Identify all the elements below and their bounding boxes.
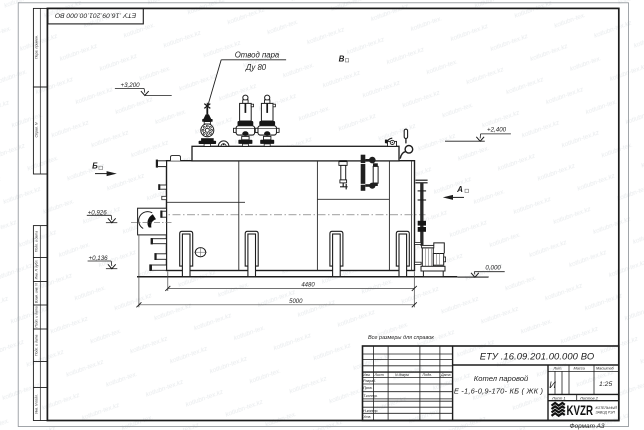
- svg-text:Инв. N подл.: Инв. N подл.: [35, 394, 39, 414]
- svg-text:ЕТУ .16.09.201.00.000 ВО: ЕТУ .16.09.201.00.000 ВО: [480, 350, 595, 361]
- svg-text:Т.контр.: Т.контр.: [363, 394, 378, 398]
- svg-text:Листов 2: Листов 2: [579, 396, 599, 401]
- svg-text:KVZR: KVZR: [567, 402, 594, 418]
- svg-text:1:25: 1:25: [599, 381, 612, 388]
- svg-text:Масштаб: Масштаб: [596, 367, 615, 371]
- svg-text:Котел паровой: Котел паровой: [474, 374, 529, 383]
- svg-text:ЕТУ .16.09.201.00.000 ВО: ЕТУ .16.09.201.00.000 ВО: [54, 12, 136, 19]
- svg-text:И: И: [549, 380, 556, 390]
- svg-text:Подп. и дата: Подп. и дата: [35, 231, 39, 252]
- svg-text:4480: 4480: [301, 283, 315, 289]
- svg-text:Взам. инв. N: Взам. инв. N: [35, 283, 39, 303]
- svg-text:0,000: 0,000: [485, 264, 501, 271]
- svg-text:Подп. и дата: Подп. и дата: [35, 334, 39, 355]
- svg-text:Н.контр.: Н.контр.: [363, 409, 378, 413]
- svg-text:А: А: [456, 185, 463, 194]
- svg-text:Все размеры для справок: Все размеры для справок: [368, 335, 434, 341]
- svg-text:Масса: Масса: [574, 367, 585, 371]
- svg-text:N докум.: N докум.: [395, 373, 410, 377]
- svg-text:Ду 80: Ду 80: [245, 63, 267, 72]
- svg-text:Перв. примен.: Перв. примен.: [35, 35, 39, 59]
- svg-text:Пров.: Пров.: [363, 386, 372, 390]
- svg-text:Лист: Лист: [374, 373, 384, 377]
- svg-text:Подп.: Подп.: [423, 373, 433, 377]
- svg-text:Изм.: Изм.: [363, 373, 371, 377]
- svg-text:Дата: Дата: [440, 373, 450, 377]
- svg-text:Справ. N: Справ. N: [35, 122, 39, 137]
- svg-text:+2,400: +2,400: [487, 127, 507, 134]
- svg-text:+3,200: +3,200: [121, 82, 141, 89]
- svg-text:Разраб.: Разраб.: [363, 379, 376, 383]
- svg-text:Инв. N дубл.: Инв. N дубл.: [35, 260, 39, 280]
- svg-text:5000: 5000: [289, 299, 303, 305]
- svg-text:Утв.: Утв.: [363, 415, 371, 419]
- svg-text:Подп. и дата: Подп. и дата: [35, 306, 39, 327]
- svg-text:Отвод пара: Отвод пара: [235, 51, 280, 60]
- svg-text:В: В: [339, 55, 345, 64]
- svg-text:Формат А3: Формат А3: [570, 423, 605, 430]
- svg-text:КОТЕЛЬНЫЙ: КОТЕЛЬНЫЙ: [596, 406, 618, 410]
- svg-text:Б: Б: [92, 162, 98, 171]
- svg-text:Лит.: Лит.: [553, 367, 563, 371]
- svg-text:Е -1,6-0,9-170- КБ ( ЖК ): Е -1,6-0,9-170- КБ ( ЖК ): [454, 387, 544, 396]
- svg-text:ЗАВОД РЭП: ЗАВОД РЭП: [596, 411, 616, 415]
- svg-text:Лист 1: Лист 1: [551, 396, 566, 401]
